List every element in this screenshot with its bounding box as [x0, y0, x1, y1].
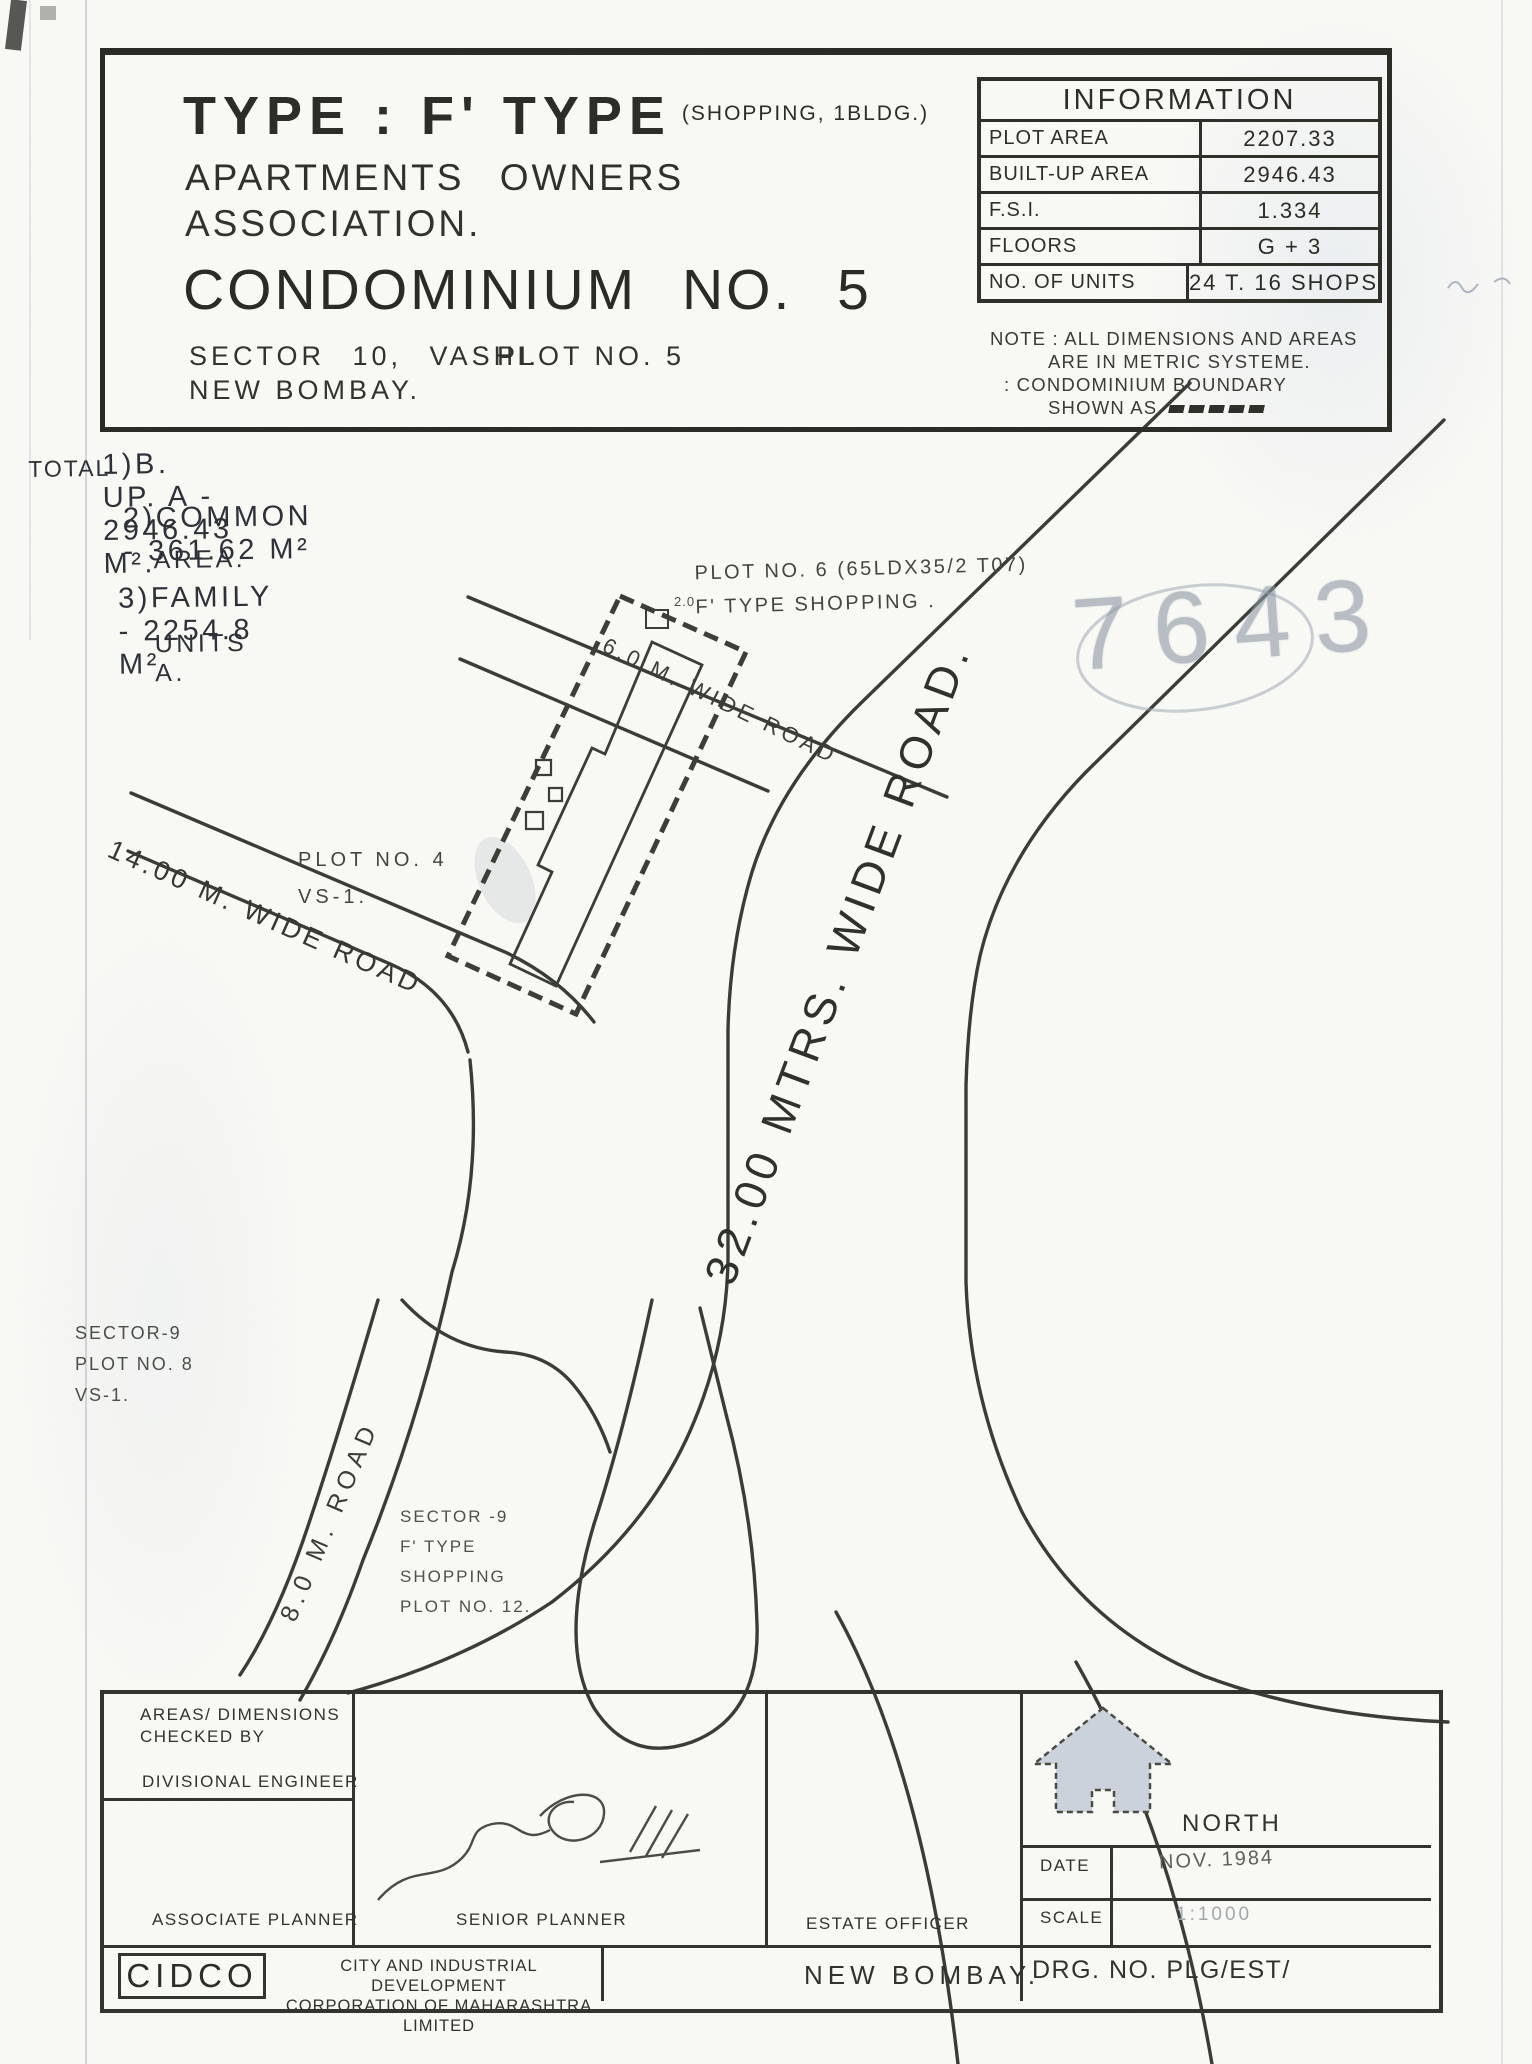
divider: [1110, 1845, 1113, 1945]
row-value: 2946.43: [1202, 158, 1378, 191]
note-line: ARE IN METRIC SYSTEME.: [1048, 350, 1358, 373]
title-block: TYPE : F' TYPE(SHOPPING, 1BLDG.) APARTME…: [100, 48, 1392, 432]
scale-label: SCALE: [1040, 1908, 1103, 1928]
totals-line: UNITS A.: [155, 629, 248, 688]
note-line: : CONDOMINIUM BOUNDARY: [1004, 373, 1358, 396]
note-line: NOTE : ALL DIMENSIONS AND AREAS: [990, 327, 1358, 350]
sector9b-line: SECTOR -9: [400, 1502, 531, 1532]
corporation-name: CITY AND INDUSTRIAL DEVELOPMENT CORPORAT…: [282, 1956, 596, 2036]
checked-by-label: AREAS/ DIMENSIONS CHECKED BY: [140, 1704, 340, 1748]
corner-blemish-2: [40, 6, 56, 20]
note-line: SHOWN AS.: [1048, 396, 1358, 419]
building-dimension-mark: 2.0: [674, 594, 695, 609]
sector9-plot12-label: SECTOR -9 F' TYPE SHOPPING PLOT NO. 12.: [400, 1502, 531, 1622]
table-row: BUILT-UP AREA 2946.43: [981, 158, 1378, 194]
scale-value: 1:1000: [1176, 1904, 1252, 1926]
divider: [1020, 1845, 1431, 1848]
divider: [104, 1798, 355, 1801]
senior-planner-label: SENIOR PLANNER: [456, 1910, 627, 1930]
date-label: DATE: [1040, 1856, 1090, 1876]
corporation-line: CITY AND INDUSTRIAL DEVELOPMENT: [282, 1956, 596, 1996]
sector9-plot8-label: SECTOR-9 PLOT NO. 8 VS-1.: [75, 1318, 194, 1411]
sector9b-line: F' TYPE: [400, 1532, 531, 1562]
boundary-dash-sample: [1164, 397, 1264, 418]
pencil-handwritten-number: 7643: [1068, 555, 1398, 694]
row-label: BUILT-UP AREA: [981, 158, 1202, 191]
table-row: FLOORS G + 3: [981, 230, 1378, 266]
drawing-number: DRG. NO. PLG/EST/: [1032, 1956, 1291, 1985]
checked-by-line: CHECKED BY: [140, 1726, 340, 1748]
plot4-line-1: PLOT NO. 4: [298, 842, 448, 879]
type-value: F' TYPE: [421, 86, 672, 146]
row-value: G + 3: [1202, 230, 1378, 263]
row-label: PLOT AREA: [981, 122, 1202, 155]
information-table: INFORMATION PLOT AREA 2207.33 BUILT-UP A…: [977, 77, 1382, 303]
row-label: F.S.I.: [981, 194, 1202, 227]
association-line-2: ASSOCIATION.: [185, 203, 481, 245]
sector9a-line: SECTOR-9: [75, 1318, 194, 1349]
date-value: NOV. 1984: [1159, 1847, 1275, 1875]
divider: [352, 1694, 355, 1946]
condominium-name: CONDOMINIUM NO. 5: [183, 257, 872, 323]
sector9b-line: PLOT NO. 12.: [400, 1592, 531, 1622]
type-note: (SHOPPING, 1BLDG.): [682, 102, 929, 125]
corporation-line: CORPORATION OF MAHARASHTRA LIMITED: [282, 1996, 596, 2036]
cidco-logo-box: CIDCO: [118, 1953, 266, 1999]
sector9a-line: PLOT NO. 8: [75, 1349, 194, 1380]
totals-line: AREA.: [153, 545, 246, 575]
associate-planner-label: ASSOCIATE PLANNER: [152, 1910, 359, 1930]
row-value: 1.334: [1202, 194, 1378, 227]
information-table-title: INFORMATION: [981, 81, 1378, 122]
totals-heading: TOTAL: [28, 455, 110, 483]
estate-officer-label: ESTATE OFFICER: [806, 1914, 970, 1934]
divider: [104, 1945, 1431, 1948]
note-block: NOTE : ALL DIMENSIONS AND AREAS ARE IN M…: [990, 327, 1358, 419]
plot-number: PLOT NO. 5: [497, 341, 685, 372]
table-row: F.S.I. 1.334: [981, 194, 1378, 230]
scanned-drawing-sheet: TYPE : F' TYPE(SHOPPING, 1BLDG.) APARTME…: [0, 0, 1532, 2064]
association-line-1: APARTMENTS OWNERS: [185, 157, 684, 199]
row-value: 24 T. 16 SHOPS: [1189, 266, 1378, 299]
note-line-4: SHOWN AS.: [1048, 397, 1164, 418]
north-label: NORTH: [1182, 1810, 1282, 1838]
city-line: NEW BOMBAY.: [189, 375, 421, 406]
plot4-label: PLOT NO. 4 VS-1.: [298, 842, 448, 916]
sector9b-line: SHOPPING: [400, 1562, 531, 1592]
table-row: NO. OF UNITS 24 T. 16 SHOPS: [981, 266, 1378, 299]
table-row: PLOT AREA 2207.33: [981, 122, 1378, 158]
sector9a-line: VS-1.: [75, 1380, 194, 1411]
divider: [765, 1694, 768, 1946]
divisional-engineer-label: DIVISIONAL ENGINEER: [142, 1772, 359, 1792]
type-prefix: TYPE :: [183, 86, 421, 146]
row-label: FLOORS: [981, 230, 1202, 263]
checked-by-line: AREAS/ DIMENSIONS: [140, 1704, 340, 1726]
footer-title-block: AREAS/ DIMENSIONS CHECKED BY DIVISIONAL …: [100, 1690, 1443, 2013]
plot4-line-2: VS-1.: [298, 879, 448, 916]
divider: [601, 1945, 604, 2001]
divider: [1020, 1898, 1431, 1901]
sector-line: SECTOR 10, VASHI.: [189, 341, 540, 372]
footer-city: NEW BOMBAY.: [804, 1960, 1040, 1991]
row-label: NO. OF UNITS: [981, 266, 1189, 299]
type-line: TYPE : F' TYPE(SHOPPING, 1BLDG.): [183, 85, 929, 147]
row-value: 2207.33: [1202, 122, 1378, 155]
